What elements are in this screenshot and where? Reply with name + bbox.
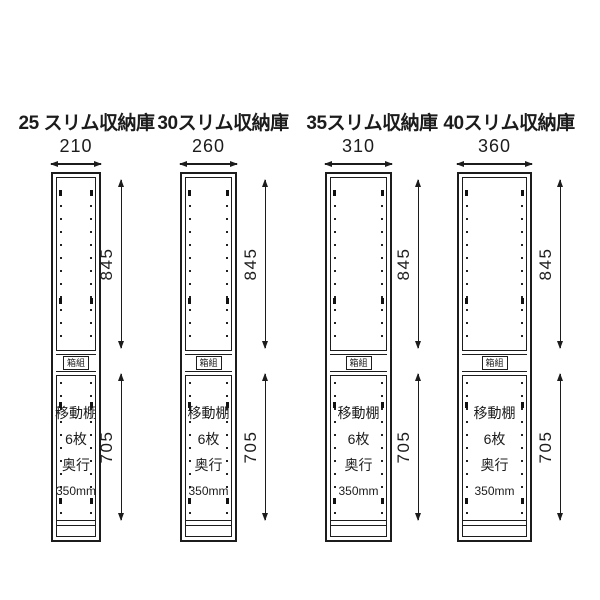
shelf-pin-holes (521, 192, 523, 348)
shelf-pin-holes (90, 192, 92, 348)
upper-height-dimension: 845 (121, 180, 123, 348)
arrow-left-icon (50, 161, 58, 167)
hinge-mark (465, 298, 468, 304)
hinge-mark (188, 298, 191, 304)
cabinet-diagram: 35スリム収納庫 310 箱組 移動棚 6枚 (325, 108, 419, 553)
cabinet-diagram: 30スリム収納庫 260 箱組 移動棚 6枚 (180, 108, 266, 553)
cabinet-outline: 箱組 移動棚 6枚 奥行 350mm (51, 172, 101, 542)
shelf-info-line: 移動棚 (183, 400, 234, 426)
shelf-info-line: 6枚 (54, 426, 98, 452)
bottom-shelf-line (56, 520, 96, 526)
center-box-section: 箱組 (330, 350, 387, 376)
width-dimension-value: 310 (342, 136, 375, 157)
cabinet-outline: 箱組 移動棚 6枚 奥行 350mm (180, 172, 237, 542)
arrow-right-icon (94, 161, 102, 167)
hinge-mark (59, 298, 62, 304)
width-dimension-value: 360 (478, 136, 511, 157)
shelf-info-line: 移動棚 (460, 400, 529, 426)
shelf-info-line: 移動棚 (328, 400, 389, 426)
cabinet-title: 35スリム収納庫 (306, 108, 437, 135)
shelf-pin-holes (226, 192, 228, 348)
upper-height-value: 845 (536, 248, 556, 281)
shelf-info-text: 移動棚 6枚 奥行 350mm (54, 400, 98, 504)
shelf-info-line: 6枚 (460, 426, 529, 452)
hinge-mark (521, 190, 524, 196)
shelf-info-line: 350mm (328, 478, 389, 504)
lower-height-dimension: 705 (121, 374, 123, 520)
arrow-down-icon (415, 513, 421, 521)
arrow-down-icon (262, 341, 268, 349)
hinge-mark (333, 190, 336, 196)
upper-height-dimension: 845 (560, 180, 562, 348)
arrow-up-icon (118, 179, 124, 187)
hinge-mark (90, 298, 93, 304)
arrow-up-icon (415, 179, 421, 187)
hinge-mark (188, 190, 191, 196)
upper-height-value: 845 (394, 248, 414, 281)
hinge-mark (465, 190, 468, 196)
lower-height-value: 705 (536, 431, 556, 464)
width-dimension-line (325, 163, 392, 165)
bottom-shelf-line (462, 520, 527, 526)
cabinet-outline: 箱組 移動棚 6枚 奥行 350mm (457, 172, 532, 542)
arrow-right-icon (525, 161, 533, 167)
shelf-info-text: 移動棚 6枚 奥行 350mm (183, 400, 234, 504)
shelf-pin-holes (60, 192, 62, 348)
hinge-mark (59, 190, 62, 196)
width-dimension-line (457, 163, 532, 165)
shelf-pin-holes (381, 192, 383, 348)
arrow-left-icon (179, 161, 187, 167)
lower-height-value: 705 (97, 431, 117, 464)
lower-height-dimension: 705 (418, 374, 420, 520)
arrow-down-icon (557, 513, 563, 521)
arrow-up-icon (262, 179, 268, 187)
arrow-down-icon (415, 341, 421, 349)
shelf-pin-holes (334, 192, 336, 348)
hinge-mark (333, 298, 336, 304)
shelf-info-text: 移動棚 6枚 奥行 350mm (460, 400, 529, 504)
cabinet-title: 40スリム収納庫 (443, 108, 574, 135)
shelf-info-line: 350mm (54, 478, 98, 504)
arrow-down-icon (118, 513, 124, 521)
hinge-mark (226, 298, 229, 304)
cabinet-title: 30スリム収納庫 (157, 108, 288, 135)
center-box-section: 箱組 (56, 350, 96, 376)
width-dimension-line (180, 163, 237, 165)
lower-height-value: 705 (394, 431, 414, 464)
upper-height-dimension: 845 (418, 180, 420, 348)
arrow-up-icon (415, 373, 421, 381)
cabinet-title: 25 スリム収納庫 (19, 108, 155, 135)
arrow-left-icon (456, 161, 464, 167)
shelf-pin-holes (466, 192, 468, 348)
box-construction-label: 箱組 (345, 356, 371, 370)
shelf-info-line: 6枚 (328, 426, 389, 452)
diagram-canvas: 25 スリム収納庫 210 箱組 移動棚 6枚 (0, 0, 600, 600)
shelf-info-line: 奥行 (54, 452, 98, 478)
width-dimension-value: 210 (59, 136, 92, 157)
lower-height-dimension: 705 (560, 374, 562, 520)
arrow-right-icon (230, 161, 238, 167)
arrow-up-icon (557, 373, 563, 381)
arrow-up-icon (118, 373, 124, 381)
box-construction-label: 箱組 (481, 356, 507, 370)
cabinet-diagram: 25 スリム収納庫 210 箱組 移動棚 6枚 (51, 108, 122, 553)
hinge-mark (90, 190, 93, 196)
hinge-mark (381, 190, 384, 196)
shelf-info-line: 350mm (183, 478, 234, 504)
arrow-up-icon (262, 373, 268, 381)
hinge-mark (381, 298, 384, 304)
cabinet-diagram: 40スリム収納庫 360 箱組 移動棚 6枚 (457, 108, 561, 553)
upper-height-dimension: 845 (265, 180, 267, 348)
bottom-shelf-line (185, 520, 232, 526)
shelf-info-line: 350mm (460, 478, 529, 504)
width-dimension-value: 260 (192, 136, 225, 157)
shelf-info-line: 奥行 (328, 452, 389, 478)
cabinet-outline: 箱組 移動棚 6枚 奥行 350mm (325, 172, 392, 542)
lower-height-value: 705 (241, 431, 261, 464)
arrow-right-icon (385, 161, 393, 167)
shelf-info-line: 奥行 (460, 452, 529, 478)
shelf-info-text: 移動棚 6枚 奥行 350mm (328, 400, 389, 504)
arrow-down-icon (262, 513, 268, 521)
center-box-section: 箱組 (462, 350, 527, 376)
shelf-info-line: 移動棚 (54, 400, 98, 426)
shelf-info-line: 奥行 (183, 452, 234, 478)
hinge-mark (521, 298, 524, 304)
lower-height-dimension: 705 (265, 374, 267, 520)
bottom-shelf-line (330, 520, 387, 526)
arrow-down-icon (118, 341, 124, 349)
shelf-pin-holes (189, 192, 191, 348)
box-construction-label: 箱組 (63, 356, 89, 370)
upper-height-value: 845 (241, 248, 261, 281)
shelf-info-line: 6枚 (183, 426, 234, 452)
width-dimension-line (51, 163, 101, 165)
hinge-mark (226, 190, 229, 196)
arrow-left-icon (324, 161, 332, 167)
arrow-down-icon (557, 341, 563, 349)
upper-height-value: 845 (97, 248, 117, 281)
box-construction-label: 箱組 (195, 356, 221, 370)
center-box-section: 箱組 (185, 350, 232, 376)
arrow-up-icon (557, 179, 563, 187)
